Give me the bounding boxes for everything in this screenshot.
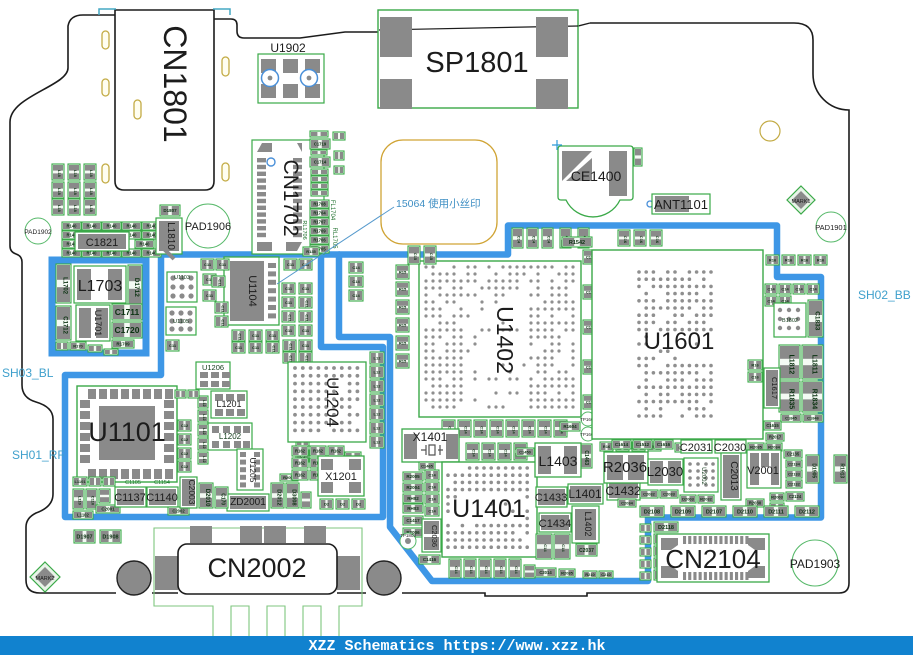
svg-text:R15: R15 xyxy=(399,269,407,274)
svg-text:C2037: C2037 xyxy=(579,548,594,554)
svg-text:L1402: L1402 xyxy=(583,511,593,536)
svg-text:PAD1902: PAD1902 xyxy=(24,229,52,236)
svg-text:C14: C14 xyxy=(532,236,537,244)
svg-text:C2003: C2003 xyxy=(187,479,197,504)
svg-text:C15: C15 xyxy=(413,253,418,261)
svg-text:L12: L12 xyxy=(374,411,382,416)
svg-text:C16: C16 xyxy=(639,236,644,244)
svg-text:C2135: C2135 xyxy=(787,452,800,457)
svg-text:C15: C15 xyxy=(429,253,434,261)
svg-text:D3008: D3008 xyxy=(291,489,297,505)
svg-text:U1206: U1206 xyxy=(202,363,224,372)
svg-text:R15: R15 xyxy=(399,286,407,291)
svg-text:C2034: C2034 xyxy=(621,500,634,505)
svg-text:U1105: U1105 xyxy=(173,319,189,325)
svg-text:R16: R16 xyxy=(801,257,809,262)
svg-text:C2032: C2032 xyxy=(643,491,656,496)
svg-text:R162: R162 xyxy=(331,449,342,454)
svg-text:D2: D2 xyxy=(324,501,330,506)
svg-text:D2: D2 xyxy=(340,501,346,506)
svg-text:R1835: R1835 xyxy=(788,389,795,410)
svg-text:C1416: C1416 xyxy=(423,557,437,562)
svg-text:D2110: D2110 xyxy=(737,509,753,515)
svg-text:R162: R162 xyxy=(295,473,306,478)
svg-text:CN1702: CN1702 xyxy=(279,159,302,236)
svg-text:D2111: D2111 xyxy=(768,509,784,515)
svg-text:U1401: U1401 xyxy=(452,495,526,523)
svg-text:C16: C16 xyxy=(751,374,759,379)
svg-text:R1708: R1708 xyxy=(313,202,326,207)
svg-text:C14: C14 xyxy=(464,426,469,434)
svg-text:C1463: C1463 xyxy=(583,450,589,465)
svg-text:R1834: R1834 xyxy=(811,389,818,410)
svg-text:SH02_BB: SH02_BB xyxy=(858,288,911,302)
svg-text:R1542: R1542 xyxy=(569,240,585,246)
svg-text:C1465: C1465 xyxy=(421,463,434,468)
svg-text:C14: C14 xyxy=(543,544,548,552)
svg-text:U1402: U1402 xyxy=(492,306,518,374)
svg-text:L2030: L2030 xyxy=(647,464,683,479)
svg-text:R1913: R1913 xyxy=(839,463,845,478)
svg-text:U1902: U1902 xyxy=(270,41,306,55)
svg-text:L12: L12 xyxy=(202,442,206,449)
svg-text:L18: L18 xyxy=(57,170,62,178)
svg-text:CN1801: CN1801 xyxy=(157,25,193,142)
svg-text:B1802: B1802 xyxy=(782,318,798,324)
svg-text:L12: L12 xyxy=(374,383,382,388)
svg-text:D2003: D2003 xyxy=(682,496,695,501)
svg-text:C11: C11 xyxy=(218,279,223,287)
svg-text:ANT1101: ANT1101 xyxy=(654,197,708,212)
svg-text:R170: R170 xyxy=(73,343,83,348)
svg-text:C2134: C2134 xyxy=(788,461,801,466)
svg-text:C11: C11 xyxy=(285,286,293,291)
svg-text:U1103: U1103 xyxy=(174,275,190,281)
svg-text:FL1704: FL1704 xyxy=(329,200,335,221)
svg-text:C11: C11 xyxy=(305,314,310,322)
svg-text:R1706: R1706 xyxy=(313,238,326,243)
svg-text:C1432: C1432 xyxy=(605,484,641,498)
svg-text:D1908: D1908 xyxy=(102,534,118,540)
svg-text:C1154: C1154 xyxy=(154,480,170,486)
svg-text:C1417: C1417 xyxy=(406,518,420,523)
svg-text:D2010: D2010 xyxy=(204,489,210,507)
svg-text:C2036: C2036 xyxy=(430,525,439,547)
svg-text:C1845: C1845 xyxy=(785,415,798,420)
svg-text:C11: C11 xyxy=(169,343,177,348)
svg-text:PAD1906: PAD1906 xyxy=(185,221,231,233)
svg-text:L1812: L1812 xyxy=(788,354,795,374)
svg-text:SP1801: SP1801 xyxy=(425,47,528,79)
svg-text:L18: L18 xyxy=(73,170,78,178)
svg-text:L1810: L1810 xyxy=(165,222,176,250)
svg-text:XZZ Schematics https://www.xzz: XZZ Schematics https://www.xzz.hk xyxy=(308,638,605,655)
svg-text:C16: C16 xyxy=(623,236,628,244)
svg-text:C2132: C2132 xyxy=(788,481,801,486)
svg-text:U1104: U1104 xyxy=(246,275,258,307)
svg-text:D1905: D1905 xyxy=(811,463,817,478)
svg-text:C110: C110 xyxy=(91,496,96,506)
svg-text:C11: C11 xyxy=(235,345,243,350)
svg-text:C11: C11 xyxy=(302,343,310,348)
svg-text:C1615: C1615 xyxy=(766,423,779,428)
svg-text:C14: C14 xyxy=(480,426,485,434)
svg-text:R140: R140 xyxy=(139,242,150,247)
svg-text:R2005: R2005 xyxy=(406,474,420,479)
svg-text:C1137: C1137 xyxy=(114,492,146,504)
svg-text:U2002: U2002 xyxy=(700,467,706,485)
svg-text:C11: C11 xyxy=(221,305,226,313)
svg-text:C1616: C1616 xyxy=(657,442,671,447)
svg-text:C210: C210 xyxy=(601,572,611,577)
svg-text:SH03_BL: SH03_BL xyxy=(2,366,54,380)
svg-text:C11: C11 xyxy=(269,333,277,338)
svg-text:C11: C11 xyxy=(289,343,294,351)
svg-text:R135: R135 xyxy=(306,249,316,254)
svg-text:U1204: U1204 xyxy=(323,377,342,427)
svg-text:C11: C11 xyxy=(252,333,260,338)
svg-text:C14: C14 xyxy=(488,449,493,457)
svg-text:R2032: R2032 xyxy=(700,496,713,501)
svg-text:PAD1903: PAD1903 xyxy=(790,557,841,571)
svg-text:C14: C14 xyxy=(512,426,517,434)
svg-text:C1450: C1450 xyxy=(519,449,532,454)
svg-text:R1707: R1707 xyxy=(313,220,326,225)
svg-text:L12: L12 xyxy=(202,456,206,463)
svg-text:C11: C11 xyxy=(221,319,226,327)
svg-text:CE1400: CE1400 xyxy=(571,168,622,184)
svg-text:C2033: C2033 xyxy=(663,491,676,496)
svg-text:C1617: C1617 xyxy=(770,377,779,399)
svg-text:C11: C11 xyxy=(302,328,310,333)
svg-text:CN2104: CN2104 xyxy=(665,544,760,574)
svg-text:MARK1: MARK1 xyxy=(792,199,811,205)
svg-text:L12: L12 xyxy=(374,355,382,360)
svg-text:X1401: X1401 xyxy=(413,430,448,444)
svg-text:C11: C11 xyxy=(285,300,293,305)
svg-text:L18: L18 xyxy=(89,188,94,196)
svg-text:C1712: C1712 xyxy=(62,316,68,334)
svg-text:U1601: U1601 xyxy=(644,328,715,355)
svg-text:R15: R15 xyxy=(399,340,407,345)
svg-text:C1821: C1821 xyxy=(86,237,118,249)
svg-text:D2: D2 xyxy=(356,501,362,506)
svg-text:C14: C14 xyxy=(561,544,566,552)
svg-text:D1907: D1907 xyxy=(76,534,92,540)
svg-text:D2118: D2118 xyxy=(658,525,674,531)
svg-text:C14: C14 xyxy=(428,508,436,513)
svg-text:MARK2: MARK2 xyxy=(36,576,55,582)
svg-text:C1711: C1711 xyxy=(115,307,140,317)
svg-text:ZD2001: ZD2001 xyxy=(230,497,266,508)
svg-text:C14: C14 xyxy=(767,286,775,291)
svg-text:C11: C11 xyxy=(287,262,295,267)
svg-text:C12: C12 xyxy=(181,437,189,442)
svg-text:D2108: D2108 xyxy=(644,509,660,515)
svg-text:C14: C14 xyxy=(484,566,489,574)
svg-text:R1709: R1709 xyxy=(116,342,130,347)
svg-text:D2107: D2107 xyxy=(706,509,722,515)
svg-text:R15: R15 xyxy=(399,358,407,363)
svg-text:C2133: C2133 xyxy=(788,471,801,476)
svg-text:C2031: C2031 xyxy=(680,442,712,454)
svg-text:C2002: C2002 xyxy=(172,509,185,514)
svg-text:C1846: C1846 xyxy=(807,415,820,420)
svg-text:R2017: R2017 xyxy=(769,435,782,440)
svg-text:R16: R16 xyxy=(769,257,777,262)
svg-text:L1102: L1102 xyxy=(77,513,89,518)
svg-text:C14: C14 xyxy=(544,426,549,434)
svg-text:C12: C12 xyxy=(181,464,189,469)
svg-text:U1701: U1701 xyxy=(93,310,103,337)
svg-text:R2036: R2036 xyxy=(603,459,647,476)
svg-text:R2030: R2030 xyxy=(749,501,762,506)
svg-text:R15: R15 xyxy=(399,322,407,327)
svg-text:C1433: C1433 xyxy=(535,492,567,504)
svg-text:D2109: D2109 xyxy=(675,509,691,515)
svg-text:SH01_RF: SH01_RF xyxy=(12,448,65,462)
svg-text:L12: L12 xyxy=(374,369,382,374)
svg-text:R2035: R2035 xyxy=(561,570,574,575)
svg-text:L1401: L1401 xyxy=(568,487,602,501)
svg-text:R162: R162 xyxy=(295,449,306,454)
svg-text:V2001: V2001 xyxy=(747,465,779,477)
svg-text:X1201: X1201 xyxy=(325,471,357,483)
svg-text:R210: R210 xyxy=(585,572,595,577)
svg-text:C14: C14 xyxy=(514,566,519,574)
svg-text:C11: C11 xyxy=(238,333,243,341)
svg-text:L18: L18 xyxy=(89,170,94,178)
svg-text:C11: C11 xyxy=(288,314,293,322)
svg-text:PAD1901: PAD1901 xyxy=(815,223,847,232)
svg-text:C2001: C2001 xyxy=(101,507,115,512)
svg-text:R140: R140 xyxy=(66,224,77,229)
svg-text:L1702: L1702 xyxy=(62,277,68,295)
svg-text:C14: C14 xyxy=(496,426,501,434)
svg-text:L18: L18 xyxy=(89,205,94,213)
svg-text:R1709: R1709 xyxy=(313,229,326,234)
svg-text:C16: C16 xyxy=(655,236,660,244)
svg-text:C2013: C2013 xyxy=(728,461,739,491)
svg-text:L18: L18 xyxy=(73,188,78,196)
svg-text:C14: C14 xyxy=(528,426,533,434)
svg-text:15064 使用小丝印: 15064 使用小丝印 xyxy=(396,197,481,210)
svg-text:L18: L18 xyxy=(57,188,62,196)
svg-text:R2004: R2004 xyxy=(406,485,420,490)
svg-text:R140: R140 xyxy=(126,224,137,229)
svg-text:R140: R140 xyxy=(86,224,97,229)
svg-text:R2003: R2003 xyxy=(771,494,784,499)
svg-text:L12: L12 xyxy=(202,428,206,435)
svg-text:C14: C14 xyxy=(352,279,360,284)
svg-text:C14: C14 xyxy=(781,286,789,291)
svg-text:R162: R162 xyxy=(295,461,306,466)
svg-text:R16: R16 xyxy=(785,257,793,262)
svg-text:C2030: C2030 xyxy=(714,442,746,454)
svg-text:RL1706: RL1706 xyxy=(301,220,307,239)
svg-text:C14: C14 xyxy=(517,236,522,244)
svg-text:U1205: U1205 xyxy=(248,457,258,482)
svg-text:C14: C14 xyxy=(454,566,459,574)
svg-text:C14: C14 xyxy=(352,265,360,270)
svg-text:C11: C11 xyxy=(252,345,260,350)
svg-text:L1811: L1811 xyxy=(811,355,818,375)
svg-text:C1720: C1720 xyxy=(114,325,139,335)
svg-text:D2112: D2112 xyxy=(799,509,815,515)
svg-text:L12: L12 xyxy=(202,414,206,421)
svg-text:C11: C11 xyxy=(206,293,214,298)
svg-text:L1202: L1202 xyxy=(219,432,242,441)
svg-text:C1714: C1714 xyxy=(314,160,327,165)
svg-text:D2012: D2012 xyxy=(276,489,282,505)
svg-text:C14: C14 xyxy=(352,293,360,298)
svg-text:R16: R16 xyxy=(817,257,825,262)
svg-text:L1201: L1201 xyxy=(216,399,241,409)
svg-text:L18: L18 xyxy=(73,205,78,213)
svg-text:C11: C11 xyxy=(305,300,310,308)
svg-text:RH03: RH03 xyxy=(407,506,419,511)
svg-text:R1704: R1704 xyxy=(313,211,326,216)
svg-text:C14: C14 xyxy=(428,472,436,477)
svg-text:C14: C14 xyxy=(547,236,552,244)
svg-text:R162: R162 xyxy=(313,449,324,454)
svg-text:C1833: C1833 xyxy=(814,311,821,331)
svg-text:D1807: D1807 xyxy=(163,208,177,213)
svg-text:C1719: C1719 xyxy=(314,142,327,147)
svg-text:L12: L12 xyxy=(202,400,206,407)
svg-text:C14: C14 xyxy=(428,484,436,489)
svg-text:TP1803: TP1803 xyxy=(400,533,416,538)
svg-text:C1105: C1105 xyxy=(125,480,141,486)
svg-text:L12: L12 xyxy=(374,425,382,430)
svg-text:C14: C14 xyxy=(809,286,817,291)
svg-text:C1614: C1614 xyxy=(615,442,629,447)
svg-text:C12: C12 xyxy=(181,451,189,456)
svg-text:C14: C14 xyxy=(469,566,474,574)
svg-text:R140: R140 xyxy=(106,224,117,229)
svg-text:C11: C11 xyxy=(272,345,277,353)
svg-text:C11: C11 xyxy=(219,262,227,267)
svg-text:R2035: R2035 xyxy=(750,444,763,449)
svg-text:C14: C14 xyxy=(428,496,436,501)
svg-text:C11: C11 xyxy=(204,262,212,267)
svg-text:L110: L110 xyxy=(78,496,83,506)
svg-text:C14: C14 xyxy=(499,566,504,574)
svg-text:C2014: C2014 xyxy=(539,570,552,575)
svg-text:C14: C14 xyxy=(504,449,509,457)
svg-text:C2124: C2124 xyxy=(789,494,802,499)
svg-text:L18: L18 xyxy=(57,205,62,213)
svg-text:C1434: C1434 xyxy=(539,518,571,530)
svg-text:CN2002: CN2002 xyxy=(207,553,306,583)
svg-text:RH02: RH02 xyxy=(407,496,419,501)
svg-text:R1604: R1604 xyxy=(563,424,577,429)
svg-text:L1703: L1703 xyxy=(78,278,123,295)
svg-text:C1140: C1140 xyxy=(146,492,178,504)
svg-text:C14: C14 xyxy=(472,449,477,457)
svg-text:R16: R16 xyxy=(751,362,759,367)
svg-text:C170: C170 xyxy=(220,493,226,505)
svg-text:C1512: C1512 xyxy=(636,442,650,447)
svg-text:U1101: U1101 xyxy=(88,417,166,447)
svg-text:C11: C11 xyxy=(285,328,293,333)
svg-text:C14: C14 xyxy=(795,286,803,291)
svg-text:C11: C11 xyxy=(302,286,310,291)
svg-text:L12: L12 xyxy=(374,439,382,444)
svg-text:R2034: R2034 xyxy=(768,444,781,449)
svg-text:L1403: L1403 xyxy=(539,453,578,469)
svg-text:R15: R15 xyxy=(399,304,407,309)
svg-text:C12: C12 xyxy=(181,423,189,428)
svg-text:L1101: L1101 xyxy=(74,479,86,484)
svg-text:R16: R16 xyxy=(603,444,611,449)
svg-text:D1712: D1712 xyxy=(133,278,140,298)
svg-text:L12: L12 xyxy=(374,397,382,402)
